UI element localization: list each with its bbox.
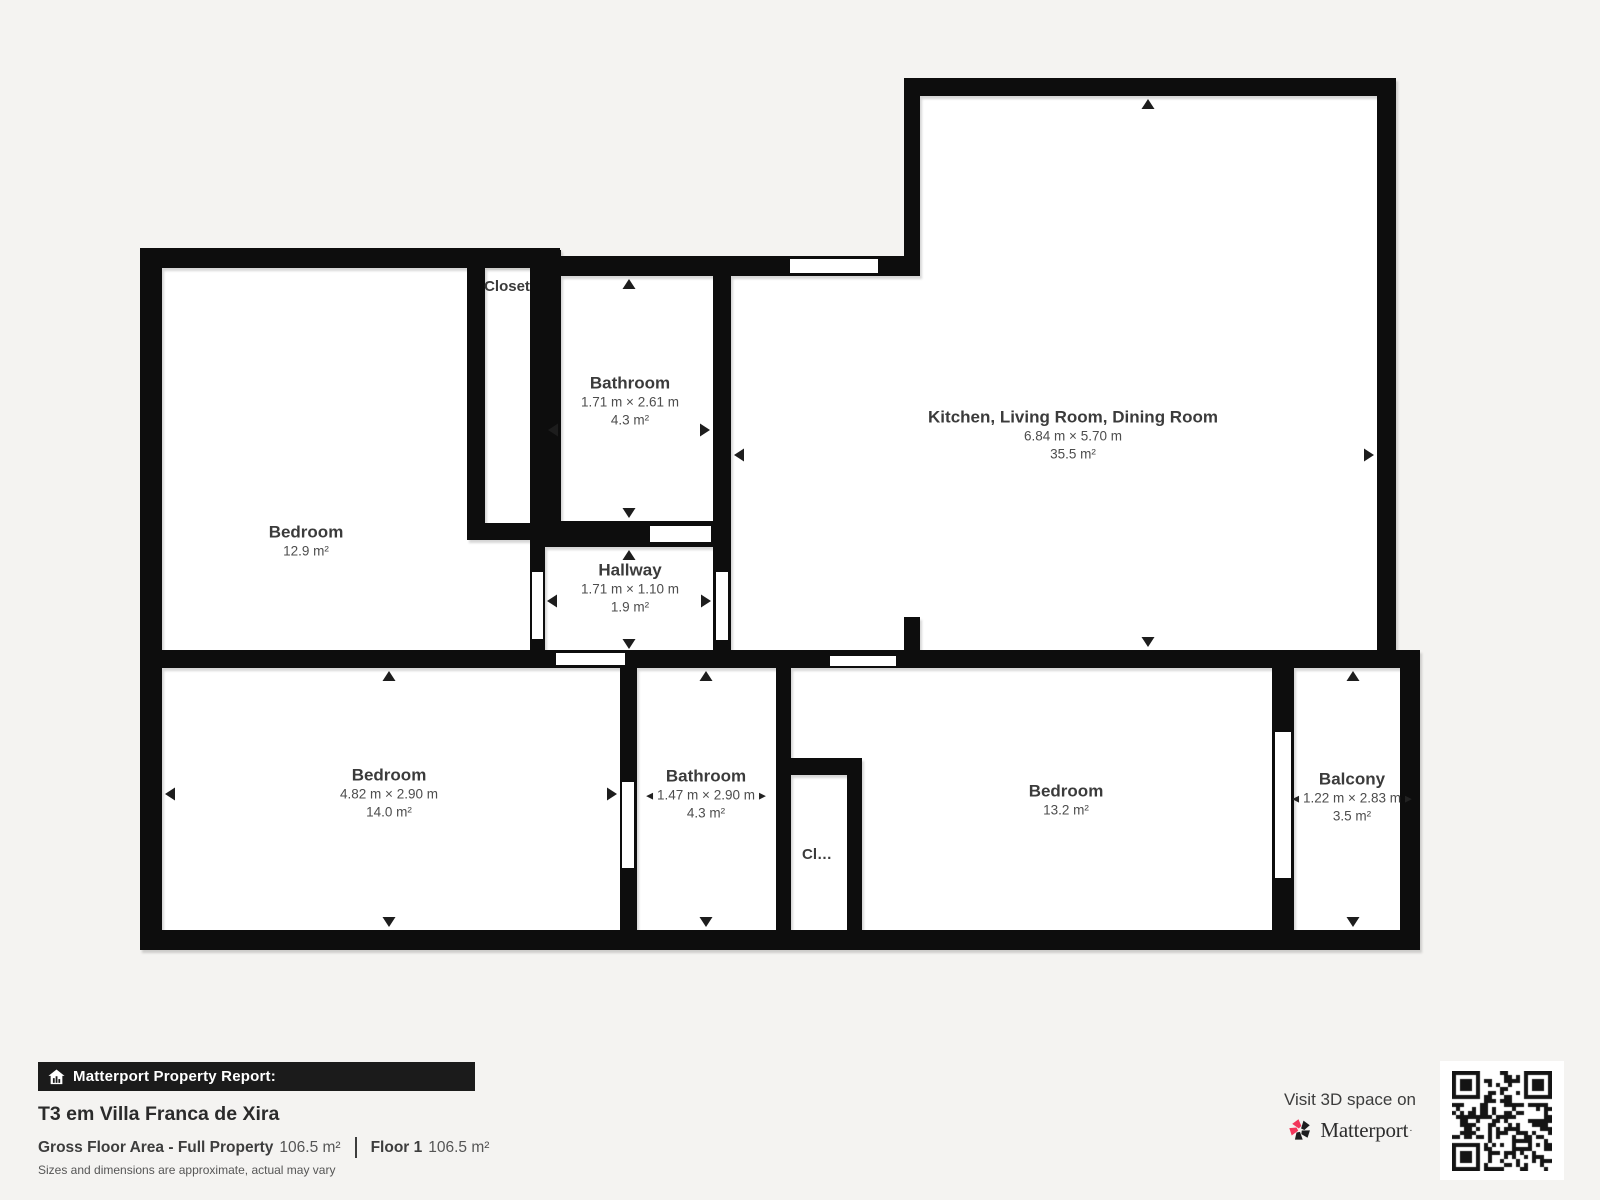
floor-label: Floor 1 [371,1139,423,1157]
room-area: 14.0 m² [340,804,438,822]
arrow-left-icon: ◀ [1292,794,1299,804]
room-dimensions: 1.71 m × 2.61 m [581,394,679,412]
visit-3d-text: Visit 3D space on [1262,1090,1438,1110]
room-name: Bathroom [581,373,679,394]
room-dimensions: 6.84 m × 5.70 m [928,428,1218,446]
room-area: 3.5 m² [1292,808,1412,826]
report-bar-label: Matterport Property Report: [73,1068,276,1085]
matterport-logo: Matterport· [1262,1117,1438,1143]
arrow-left-icon: ◀ [646,791,653,801]
room-area: 1.9 m² [581,599,679,617]
door-entry [790,259,878,273]
room-name: Bedroom [1029,781,1104,802]
room-dimensions: 4.82 m × 2.90 m [340,786,438,804]
room-area: 4.3 m² [646,805,766,823]
room-label-kitchen: Kitchen, Living Room, Dining Room 6.84 m… [928,407,1218,464]
room-floor-closet1 [485,270,530,523]
report-metrics: Gross Floor Area - Full Property 106.5 m… [38,1137,489,1158]
disclaimer-text: Sizes and dimensions are approximate, ac… [38,1163,335,1177]
gross-floor-area-label: Gross Floor Area - Full Property [38,1139,273,1157]
room-name: Balcony [1292,769,1412,790]
qr-code [1440,1061,1564,1180]
metric-divider [355,1137,357,1158]
room-label-closet1: Closet [484,278,530,296]
gross-floor-area-value: 106.5 m² [279,1139,340,1157]
room-label-hallway: Hallway 1.71 m × 1.10 m 1.9 m² [581,560,679,617]
room-name: Kitchen, Living Room, Dining Room [928,407,1218,428]
door-balcony [1275,732,1291,878]
room-dimensions: 1.71 m × 1.10 m [581,581,679,599]
room-label-bathroom1: Bathroom 1.71 m × 2.61 m 4.3 m² [581,373,679,430]
room-area: 12.9 m² [269,543,344,561]
matterport-wordmark: Matterport [1320,1118,1408,1143]
matterport-pinwheel-icon [1287,1117,1313,1143]
room-area: 13.2 m² [1029,802,1104,820]
house-scan-icon [48,1069,65,1085]
brand-trademark: · [1409,1125,1412,1136]
door-bedroom2 [556,653,625,665]
room-label-closet2: Cl… [802,846,832,864]
room-dimensions: ◀1.47 m × 2.90 m▶ [646,787,766,805]
room-name: Hallway [581,560,679,581]
room-label-balcony: Balcony ◀1.22 m × 2.83 m▶ 3.5 m² [1292,769,1412,826]
visit-3d-promo: Visit 3D space on Matterport· [1262,1090,1438,1143]
room-name: Bathroom [646,766,766,787]
room-dimensions-text: 1.47 m × 2.90 m [657,788,755,803]
door-hallway-left [532,572,543,639]
floorplan-page: Bedroom 12.9 m² Closet Bathroom 1.71 m ×… [0,0,1600,1200]
arrow-right-icon: ▶ [759,791,766,801]
room-dimensions: ◀1.22 m × 2.83 m▶ [1292,790,1412,808]
floorplan-diagram [0,0,1600,1200]
room-label-bedroom3: Bedroom 13.2 m² [1029,781,1104,820]
property-title: T3 em Villa Franca de Xira [38,1103,279,1126]
room-name: Bedroom [340,765,438,786]
room-floor-kitchen [731,96,1377,650]
room-name: Cl… [802,846,832,864]
qr-code-canvas [1452,1071,1552,1171]
room-name: Bedroom [269,522,344,543]
room-name: Closet [484,278,530,296]
arrow-right-icon: ▶ [1405,794,1412,804]
door-bedroom3 [830,656,896,666]
room-label-bedroom2: Bedroom 4.82 m × 2.90 m 14.0 m² [340,765,438,822]
room-label-bedroom1: Bedroom 12.9 m² [269,522,344,561]
door-hallway-right [716,572,728,640]
room-dimensions-text: 1.22 m × 2.83 m [1303,791,1401,806]
room-label-bathroom2: Bathroom ◀1.47 m × 2.90 m▶ 4.3 m² [646,766,766,823]
door-bathroom2 [622,782,634,868]
room-area: 35.5 m² [928,446,1218,464]
report-header-bar: Matterport Property Report: [38,1062,475,1091]
floor-value: 106.5 m² [428,1139,489,1157]
room-area: 4.3 m² [581,412,679,430]
door-bathroom1 [650,526,711,542]
